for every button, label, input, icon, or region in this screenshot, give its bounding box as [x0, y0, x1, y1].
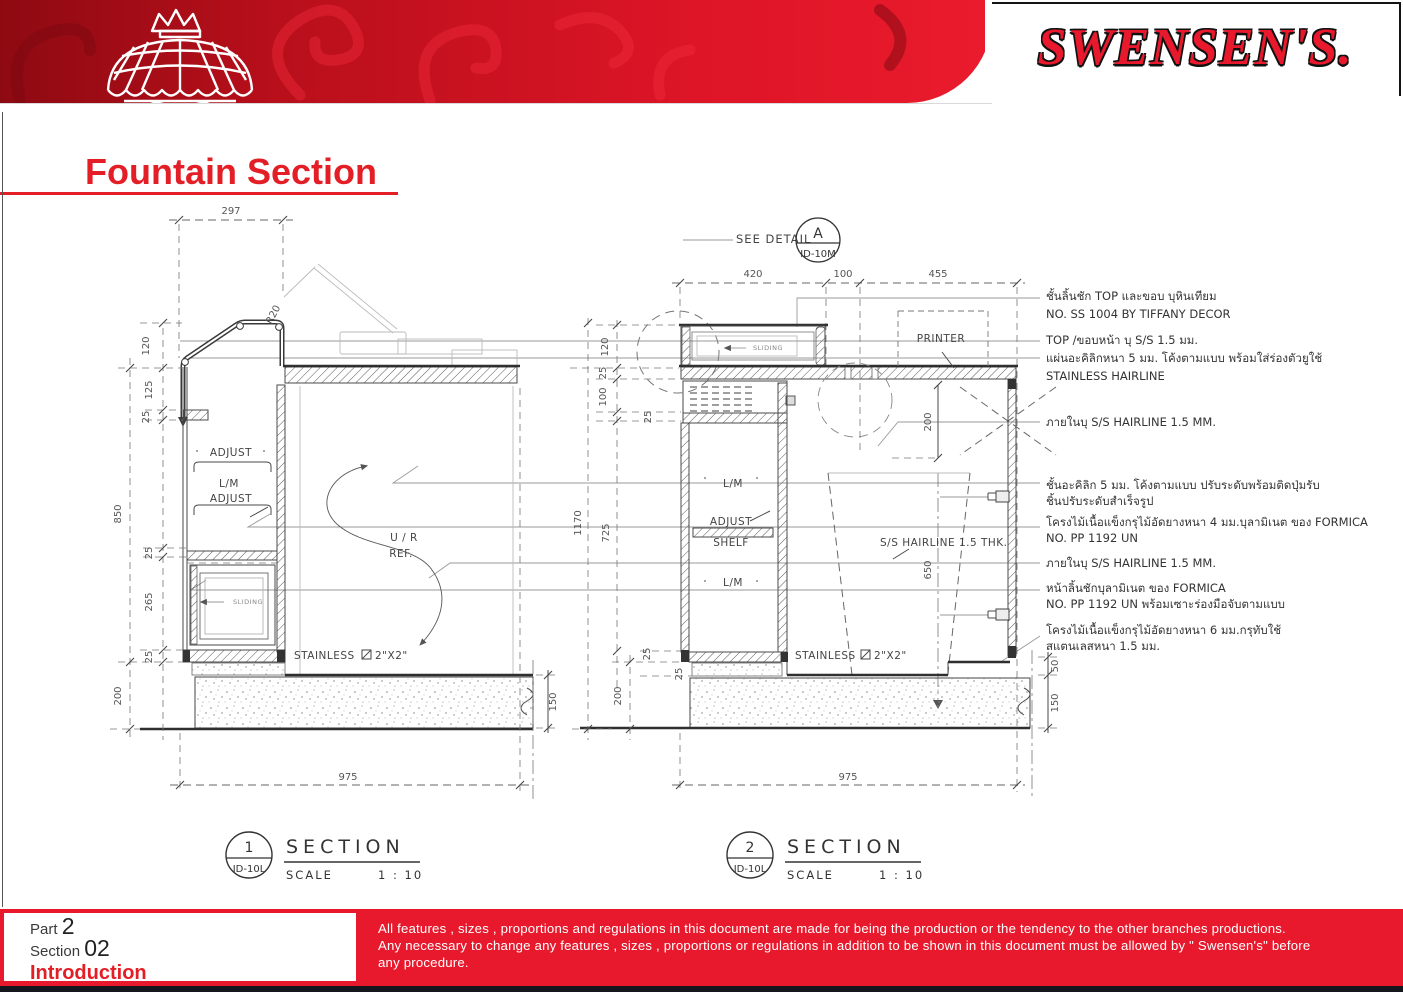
- note-1-line-2: NO. SS 1004 BY TIFFANY DECOR: [1046, 307, 1231, 321]
- label-tube-size-2: 2"X2": [874, 650, 907, 662]
- note-3-line-1: แผ่นอะคิลิกหนา 5 มม. โค้งตามแบบ พร้อมใส่…: [1046, 351, 1322, 365]
- disclaimer-text: All features , sizes , proportions and r…: [378, 920, 1388, 971]
- part-section-card: Part 2 Section 02 Introduction: [4, 913, 356, 981]
- dim-297: 297: [221, 206, 240, 217]
- note-2-line-1: TOP /ขอบหน้า บุ S/S 1.5 มม.: [1045, 333, 1198, 347]
- dim-25b-1: 25: [144, 547, 155, 560]
- label-lm-top: L/M: [723, 478, 743, 490]
- part-value: 2: [62, 913, 75, 939]
- label-hairline: S/S HAIRLINE 1.5 THK.: [880, 537, 1008, 549]
- note-6-line-1: โครงไม้เนื้อแข็งกรุไม้อัดยางหนา 4 มม.บุล…: [1046, 514, 1368, 529]
- note-5-line-1: ชั้นอะคิลิก 5 มม. โค้งตามแบบ ปรับระดับพร…: [1046, 477, 1320, 492]
- section-value: 02: [84, 935, 110, 961]
- dim-1170: 1170: [573, 510, 584, 535]
- see-detail-label: SEE DETAIL: [736, 232, 811, 246]
- note-9-line-2: สแตนเลสหนา 1.5 มม.: [1046, 639, 1160, 653]
- dim-725: 725: [601, 523, 612, 542]
- note-5-line-2: ชิ้นปรับระดับสำเร็จรูป: [1046, 493, 1153, 508]
- section-2-sheet: ID-10L: [734, 864, 767, 875]
- tube-section-symbol-2: [861, 650, 870, 659]
- note-3-line-2: STAINLESS HAIRLINE: [1046, 369, 1165, 383]
- dim-150-2: 150: [1050, 693, 1061, 712]
- label-adjust-bottom: ADJUST: [210, 493, 252, 505]
- section-2-title: 2 ID-10L SECTION SCALE 1 : 10: [727, 832, 924, 882]
- note-6-line-2: NO. PP 1192 UN: [1046, 531, 1138, 545]
- dim-100t: 100: [833, 269, 852, 280]
- bottom-bar: [0, 986, 1403, 992]
- label-sliding-2: SLIDING: [753, 344, 783, 352]
- dim-25d-2: 25: [674, 668, 685, 681]
- dim-975-1: 975: [338, 772, 357, 783]
- acrylic-guard: [284, 264, 517, 366]
- section-line: Section 02: [30, 939, 356, 961]
- tube-section-symbol-1: [362, 650, 371, 659]
- label-stainless-1: STAINLESS: [294, 650, 355, 662]
- louver-vent: [690, 387, 753, 411]
- label-tube-size-1: 2"X2": [375, 650, 408, 662]
- note-8-line-1: หน้าลิ้นชักบุลามิเนต ของ FORMICA: [1046, 580, 1226, 595]
- dim-25b-2: 25: [643, 411, 654, 424]
- section-2-scale-label: SCALE: [787, 868, 834, 882]
- annotation-notes: ชั้นลิ้นชัก TOP และขอบ บุหินเทียม NO. SS…: [1045, 288, 1368, 653]
- disclaimer-line-3: any procedure.: [378, 954, 1388, 971]
- section-2-label: SECTION: [787, 836, 906, 858]
- label-adjust-shelf-1: ADJUST: [710, 516, 752, 528]
- label-lm: L/M: [219, 478, 239, 490]
- chapter-subtitle: Introduction: [30, 962, 356, 985]
- dim-120-2: 120: [600, 337, 611, 356]
- dim-265: 265: [144, 592, 155, 611]
- disclaimer-line-2: Any necessary to change any features , s…: [378, 937, 1388, 954]
- section-1-label: SECTION: [286, 836, 405, 858]
- dim-120-1: 120: [141, 336, 152, 355]
- dim-975-2: 975: [838, 772, 857, 783]
- dim-25a-2: 25: [598, 367, 609, 380]
- part-label: Part: [30, 921, 58, 938]
- label-lm-bottom: L/M: [723, 577, 743, 589]
- note-8-line-2: NO. PP 1192 UN พร้อมเซาะร่องมือจับตามแบบ: [1046, 597, 1285, 611]
- dim-50: 50: [1050, 660, 1061, 673]
- section-label: Section: [30, 943, 80, 960]
- dim-125: 125: [144, 380, 155, 399]
- dim-200-right: 200: [923, 412, 934, 431]
- technical-drawing-sheet: 297 R20 ADJUST L/M ADJ: [0, 0, 1403, 992]
- disclaimer-line-1: All features , sizes , proportions and r…: [378, 920, 1388, 937]
- section-1-sheet: ID-10L: [233, 864, 266, 875]
- section-drawing-1: 297 R20 ADJUST L/M ADJ: [110, 206, 559, 882]
- shelf-bolt-bottom: [940, 609, 1009, 620]
- note-9-line-1: โครงไม้เนื้อแข็งกรุไม้อัดยางหนา 6 มม.กรุ…: [1046, 622, 1281, 637]
- section-1-title: 1 ID-10L SECTION SCALE 1 : 10: [226, 832, 423, 882]
- section-1-scale-label: SCALE: [286, 868, 333, 882]
- dim-25c-1: 25: [144, 651, 155, 664]
- dim-850: 850: [113, 504, 124, 523]
- shelf-bolt-top: [940, 491, 1009, 502]
- note-1-line-1: ชั้นลิ้นชัก TOP และขอบ บุหินเทียม: [1046, 288, 1217, 303]
- section-drawing-2: SEE DETAIL A ID-10M 420 100 455 SLIDING: [570, 218, 1061, 882]
- label-ur-1: U / R: [390, 532, 418, 544]
- dim-420: 420: [743, 269, 762, 280]
- part-line: Part 2: [30, 917, 356, 939]
- dim-200-left-2: 200: [613, 686, 624, 705]
- label-sliding-1: SLIDING: [233, 598, 263, 606]
- section-1-scale-value: 1 : 10: [378, 868, 423, 882]
- note-7-line-1: ภายในบุ S/S HAIRLINE 1.5 MM.: [1046, 556, 1216, 570]
- label-stainless-2: STAINLESS: [795, 650, 856, 662]
- section-2-number: 2: [746, 840, 755, 856]
- dim-150-1: 150: [548, 692, 559, 711]
- note-4-line-1: ภายในบุ S/S HAIRLINE 1.5 MM.: [1046, 415, 1216, 429]
- dim-100-2: 100: [598, 387, 609, 406]
- dim-650: 650: [923, 560, 934, 579]
- section-1-number: 1: [245, 840, 254, 856]
- detail-letter: A: [813, 226, 823, 242]
- dim-25c-2: 25: [642, 648, 653, 661]
- dim-455: 455: [928, 269, 947, 280]
- detail-sheet: ID-10M: [800, 249, 836, 260]
- label-printer: PRINTER: [917, 333, 965, 345]
- dim-25a-1: 25: [141, 411, 152, 424]
- section-2-scale-value: 1 : 10: [879, 868, 924, 882]
- label-adjust-shelf-2: SHELF: [713, 537, 749, 549]
- dim-200-1: 200: [113, 686, 124, 705]
